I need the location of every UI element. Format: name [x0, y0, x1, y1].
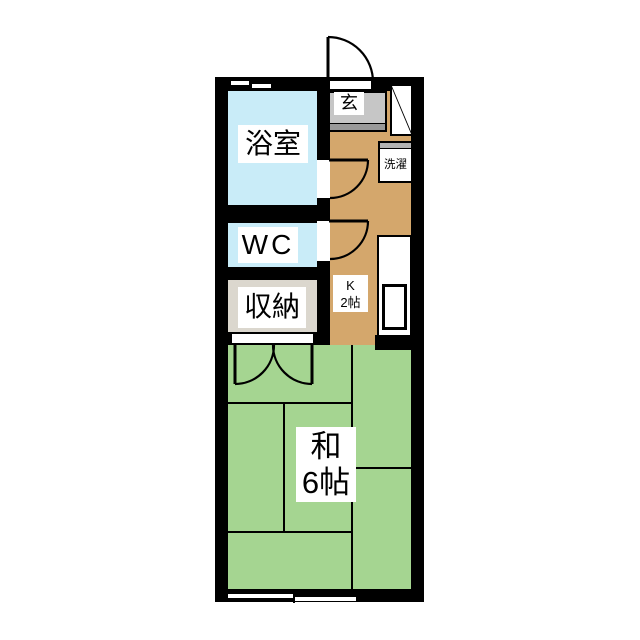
kitchen-label-line1: K: [346, 277, 355, 294]
bathroom-window-tick: [249, 77, 252, 89]
laundry-machine-box: 洗濯: [378, 141, 413, 183]
entrance-door-swing: [328, 37, 373, 82]
entrance-label-text: 玄: [340, 94, 358, 114]
bathroom-window-pane-right: [250, 83, 272, 89]
japanese-room-label: 和 6帖: [296, 427, 356, 502]
entrance-door-threshold: [328, 79, 373, 91]
storage-door-threshold: [230, 332, 315, 345]
south-window-tick: [293, 590, 296, 603]
entrance-step-edge: [330, 123, 385, 130]
storage-label: 収納: [238, 287, 306, 328]
bathroom-label-text: 浴室: [245, 129, 301, 160]
toilet-door-opening: [317, 221, 330, 261]
kitchen-label-line2: 2帖: [340, 294, 360, 311]
floorplan-canvas: 洗濯 浴室 WC 収納 玄 K 2帖: [0, 0, 640, 640]
pipe-space-box: [390, 84, 413, 136]
kitchen-room-wall-segment: [375, 335, 411, 350]
entrance-label: 玄: [334, 92, 364, 115]
japanese-room-label-line2: 6帖: [302, 465, 350, 501]
south-window-pane-left: [227, 593, 295, 599]
storage-label-text: 収納: [244, 292, 300, 323]
kitchen-sink: [382, 284, 407, 330]
laundry-label: 洗濯: [380, 156, 411, 172]
bathroom-door-opening: [317, 160, 330, 198]
laundry-box-strip: [380, 143, 411, 149]
south-window-pane-right: [294, 596, 357, 602]
japanese-room-label-line1: 和: [311, 429, 342, 465]
pipe-space-diagonal: [391, 85, 412, 135]
toilet-label: WC: [238, 227, 298, 263]
bathroom-label: 浴室: [238, 125, 308, 163]
kitchen-label: K 2帖: [333, 275, 368, 312]
toilet-label-text: WC: [242, 230, 295, 261]
